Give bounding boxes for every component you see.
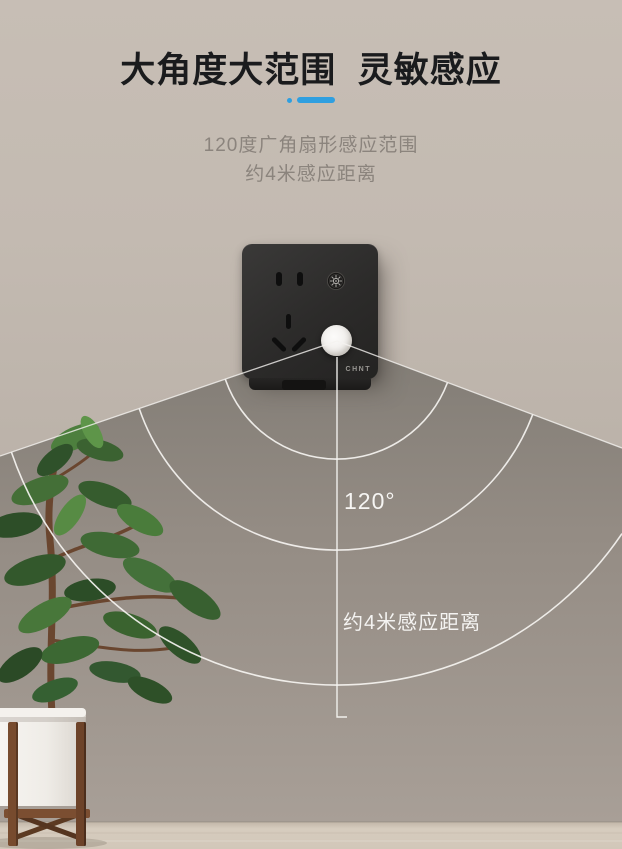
- brand-logo: CHNT: [346, 366, 371, 373]
- scene-background: [0, 0, 622, 849]
- title-accent: [0, 97, 622, 103]
- title-accent-dash: [297, 97, 335, 103]
- distance-label: 约4米感应距离: [343, 606, 481, 635]
- product-banner: CHNT 大角度大范围 灵敏感应 120度广角扇形感应范围 约4米感应距离 12…: [0, 0, 622, 849]
- socket-panel: CHNT: [242, 244, 378, 392]
- title-accent-dot: [287, 98, 292, 103]
- motion-sensor-dome: [321, 325, 352, 356]
- socket-slot-ground: [286, 314, 291, 329]
- light-sensor-icon: [326, 271, 346, 291]
- socket-slot-flat-right: [297, 272, 303, 286]
- socket-slot-flat-left: [276, 272, 282, 286]
- page-title: 大角度大范围 灵敏感应: [0, 42, 622, 93]
- socket-base-notch: [282, 380, 326, 390]
- angle-label: 120°: [344, 488, 396, 515]
- subtitle-line-1: 120度广角扇形感应范围: [0, 130, 622, 157]
- socket-faceplate: [242, 244, 378, 379]
- subtitle-line-2: 约4米感应距离: [0, 159, 622, 186]
